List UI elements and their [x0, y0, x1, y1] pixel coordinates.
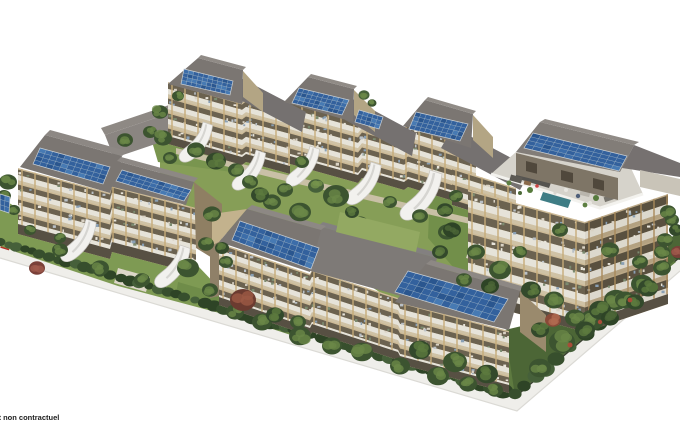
svg-text:t non contractuel: t non contractuel — [0, 413, 59, 422]
